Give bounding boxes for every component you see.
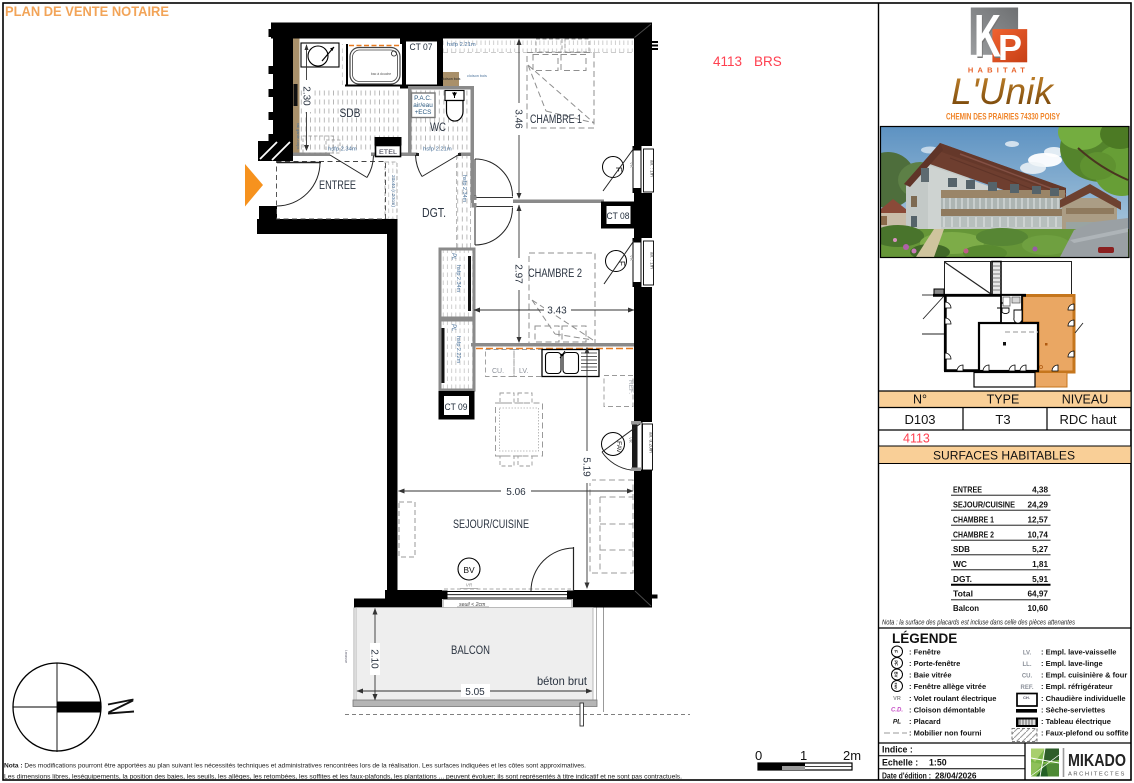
svg-text:SURFACES HABITABLES: SURFACES HABITABLES — [933, 451, 1075, 463]
svg-text:VR: VR — [628, 437, 633, 443]
svg-text:K: K — [974, 3, 1001, 70]
svg-text:: Sèche-serviettes: : Sèche-serviettes — [1041, 706, 1105, 715]
svg-text:P: P — [998, 27, 1022, 68]
svg-text:T3: T3 — [995, 412, 1010, 427]
svg-text:F: F — [894, 650, 899, 653]
svg-text:2.30: 2.30 — [301, 86, 312, 106]
svg-text:DGT.: DGT. — [422, 206, 446, 220]
svg-text:BV: BV — [463, 565, 475, 575]
svg-text:LL.: LL. — [1023, 662, 1032, 668]
svg-text:l.masse: l.masse — [344, 650, 348, 663]
svg-text:1:50: 1:50 — [929, 758, 947, 768]
svg-text:VR: VR — [629, 255, 634, 261]
svg-text:SDB: SDB — [340, 108, 361, 120]
svg-text:CU.: CU. — [1022, 674, 1033, 680]
svg-text:20x40 (r.20cm): 20x40 (r.20cm) — [390, 175, 396, 207]
svg-text:air/eau: air/eau — [413, 102, 433, 109]
svg-text:DGT.: DGT. — [953, 575, 972, 584]
svg-text:CHAMBRE 2: CHAMBRE 2 — [528, 268, 582, 280]
svg-text:1: 1 — [800, 748, 807, 763]
svg-text:2m: 2m — [843, 748, 861, 763]
svg-text:BV: BV — [894, 672, 899, 678]
svg-text:5.06: 5.06 — [506, 487, 526, 498]
svg-text:LÉGENDE: LÉGENDE — [892, 631, 957, 646]
svg-text:ENTREE: ENTREE — [953, 486, 982, 495]
svg-text:0: 0 — [755, 748, 762, 763]
svg-text:: Cloison démontable: : Cloison démontable — [909, 706, 985, 715]
svg-text:: Empl. lave-linge: : Empl. lave-linge — [1041, 659, 1103, 668]
svg-text:CT 08: CT 08 — [607, 211, 630, 221]
svg-text:Date d'édition :: Date d'édition : — [882, 771, 931, 781]
svg-text:LV.: LV. — [1023, 651, 1032, 657]
svg-text:: Porte-fenêtre: : Porte-fenêtre — [909, 659, 960, 668]
svg-text:PF: PF — [894, 660, 899, 666]
svg-text:FAV: FAV — [615, 441, 622, 453]
svg-text:all. : 1m: all. : 1m — [649, 252, 655, 269]
svg-text:F: F — [617, 261, 626, 266]
svg-text:Indice :: Indice : — [882, 745, 913, 755]
svg-text:4113: 4113 — [713, 54, 742, 69]
svg-text:VR: VR — [893, 696, 901, 702]
svg-text:: Empl. réfrigérateur: : Empl. réfrigérateur — [1041, 682, 1113, 691]
svg-text:LV.: LV. — [519, 368, 528, 375]
svg-text:2.10: 2.10 — [369, 649, 380, 669]
svg-text:REF.: REF. — [627, 380, 634, 394]
svg-text:PL: PL — [893, 719, 901, 726]
svg-text:all. : 1m: all. : 1m — [649, 160, 655, 177]
svg-text:VR: VR — [629, 162, 634, 168]
svg-text:3.46: 3.46 — [513, 109, 524, 129]
svg-text:PLAN DE VENTE NOTAIRE: PLAN DE VENTE NOTAIRE — [5, 3, 169, 19]
svg-text:64,97: 64,97 — [1028, 590, 1049, 599]
svg-text:cloison bois: cloison bois — [467, 74, 487, 78]
svg-text:hsfp 2.34m: hsfp 2.34m — [328, 147, 357, 153]
svg-text:Echelle :: Echelle : — [882, 758, 918, 768]
svg-text:24,29: 24,29 — [1028, 501, 1049, 510]
svg-text:hsfp 2.34m: hsfp 2.34m — [461, 175, 467, 203]
svg-text:12,57: 12,57 — [1028, 516, 1049, 525]
svg-text:: Mobilier non fourni: : Mobilier non fourni — [909, 729, 982, 738]
svg-text:hsfp 2.34m: hsfp 2.34m — [455, 265, 461, 293]
svg-text:Nota : la surface des placard: Nota : la surface des placards est inclu… — [882, 619, 1075, 627]
svg-text:VR: VR — [466, 583, 473, 588]
svg-text:F: F — [614, 167, 623, 172]
svg-text:WC: WC — [430, 122, 446, 134]
svg-text:28/04/2026: 28/04/2026 — [935, 771, 977, 781]
svg-text:NIVEAU: NIVEAU — [1062, 393, 1109, 407]
svg-text:FAV: FAV — [894, 683, 898, 690]
svg-text:CHEMIN DES PRAIRIES 74330 POIS: CHEMIN DES PRAIRIES 74330 POISY — [946, 112, 1060, 122]
svg-text:Les dimensions libres, leséqui: Les dimensions libres, leséquipements, l… — [4, 774, 682, 781]
svg-text:WC: WC — [953, 560, 967, 569]
svg-text:SDB: SDB — [953, 545, 970, 554]
svg-text:4,38: 4,38 — [1032, 486, 1048, 495]
svg-text:: Baie vitrée: : Baie vitrée — [909, 671, 952, 680]
svg-text:CU.: CU. — [492, 368, 504, 375]
svg-text:Balcon: Balcon — [953, 604, 979, 613]
svg-text:TYPE: TYPE — [987, 393, 1020, 407]
svg-text:Nota : Des modifications pourr: Nota : Des modifications pourront être a… — [4, 763, 586, 770]
svg-text:cloison bois: cloison bois — [442, 77, 461, 81]
svg-text:: Empl. cuisinière & four: : Empl. cuisinière & four — [1041, 671, 1127, 680]
svg-text:L'Unik: L'Unik — [951, 71, 1055, 112]
svg-text:CT 07: CT 07 — [410, 42, 433, 52]
svg-text:hsfp 2.22m: hsfp 2.22m — [455, 336, 461, 364]
svg-text:5.19: 5.19 — [581, 457, 592, 477]
svg-text:BRS: BRS — [754, 54, 782, 69]
svg-text:béton brut: béton brut — [537, 674, 588, 688]
svg-text:D103: D103 — [904, 412, 935, 427]
svg-text:: Fenêtre: : Fenêtre — [909, 648, 941, 657]
svg-text:PL: PL — [450, 324, 456, 331]
svg-text:10,74: 10,74 — [1028, 531, 1049, 540]
svg-text:: Empl. lave-vaisselle: : Empl. lave-vaisselle — [1041, 648, 1116, 657]
svg-text:: Fenêtre allège vitrée: : Fenêtre allège vitrée — [909, 682, 986, 691]
svg-text:MIKADO: MIKADO — [1068, 750, 1126, 770]
svg-text:5.05: 5.05 — [465, 687, 485, 698]
svg-text:: Placard: : Placard — [909, 717, 941, 726]
svg-text:SEJOUR/CUISINE: SEJOUR/CUISINE — [453, 519, 529, 531]
svg-text:5,27: 5,27 — [1032, 545, 1048, 554]
svg-text:CH.: CH. — [1023, 695, 1030, 700]
svg-text:C.D.: C.D. — [891, 708, 903, 714]
svg-text:2.97: 2.97 — [513, 264, 524, 284]
svg-text:hsfp 2.21m: hsfp 2.21m — [447, 42, 476, 48]
svg-text:P.A.C.: P.A.C. — [414, 95, 432, 102]
svg-text:3.43: 3.43 — [547, 306, 567, 317]
svg-text:4113: 4113 — [903, 432, 930, 446]
svg-text:: Faux-plefond ou soffite: : Faux-plefond ou soffite — [1041, 729, 1129, 738]
svg-text:CT 09: CT 09 — [445, 402, 468, 412]
svg-text:ENTREE: ENTREE — [319, 180, 356, 192]
svg-text:rail garde-corps: rail garde-corps — [296, 123, 300, 149]
svg-text:10,60: 10,60 — [1028, 604, 1049, 613]
svg-text:: Volet roulant électrique: : Volet roulant électrique — [909, 694, 996, 703]
svg-text:+ECS: +ECS — [415, 109, 432, 116]
svg-text:5,91: 5,91 — [1032, 575, 1048, 584]
svg-text:N°: N° — [913, 393, 927, 407]
svg-text:SEJOUR/CUISINE: SEJOUR/CUISINE — [953, 501, 1015, 510]
svg-text:ARCHITECTES: ARCHITECTES — [1068, 772, 1126, 778]
svg-text:1,81: 1,81 — [1032, 560, 1048, 569]
svg-text:bac à douche: bac à douche — [371, 72, 391, 76]
svg-text:all. 0.20m: all. 0.20m — [648, 432, 654, 453]
svg-text:ETEL: ETEL — [379, 149, 397, 156]
svg-text:REF.: REF. — [1020, 685, 1033, 691]
svg-text:Total: Total — [953, 590, 973, 599]
svg-text:CHAMBRE 2: CHAMBRE 2 — [953, 531, 994, 540]
svg-text:CHAMBRE 1: CHAMBRE 1 — [953, 516, 994, 525]
svg-text:CHAMBRE 1: CHAMBRE 1 — [530, 114, 582, 126]
svg-text:PL: PL — [450, 253, 456, 260]
svg-text:hsfp 2.21m: hsfp 2.21m — [423, 147, 452, 153]
svg-text:: Tableau électrique: : Tableau électrique — [1041, 717, 1111, 726]
svg-text:: Chaudière individuelle: : Chaudière individuelle — [1041, 694, 1126, 703]
svg-text:BALCON: BALCON — [451, 645, 490, 657]
svg-text:RDC haut: RDC haut — [1059, 412, 1116, 427]
